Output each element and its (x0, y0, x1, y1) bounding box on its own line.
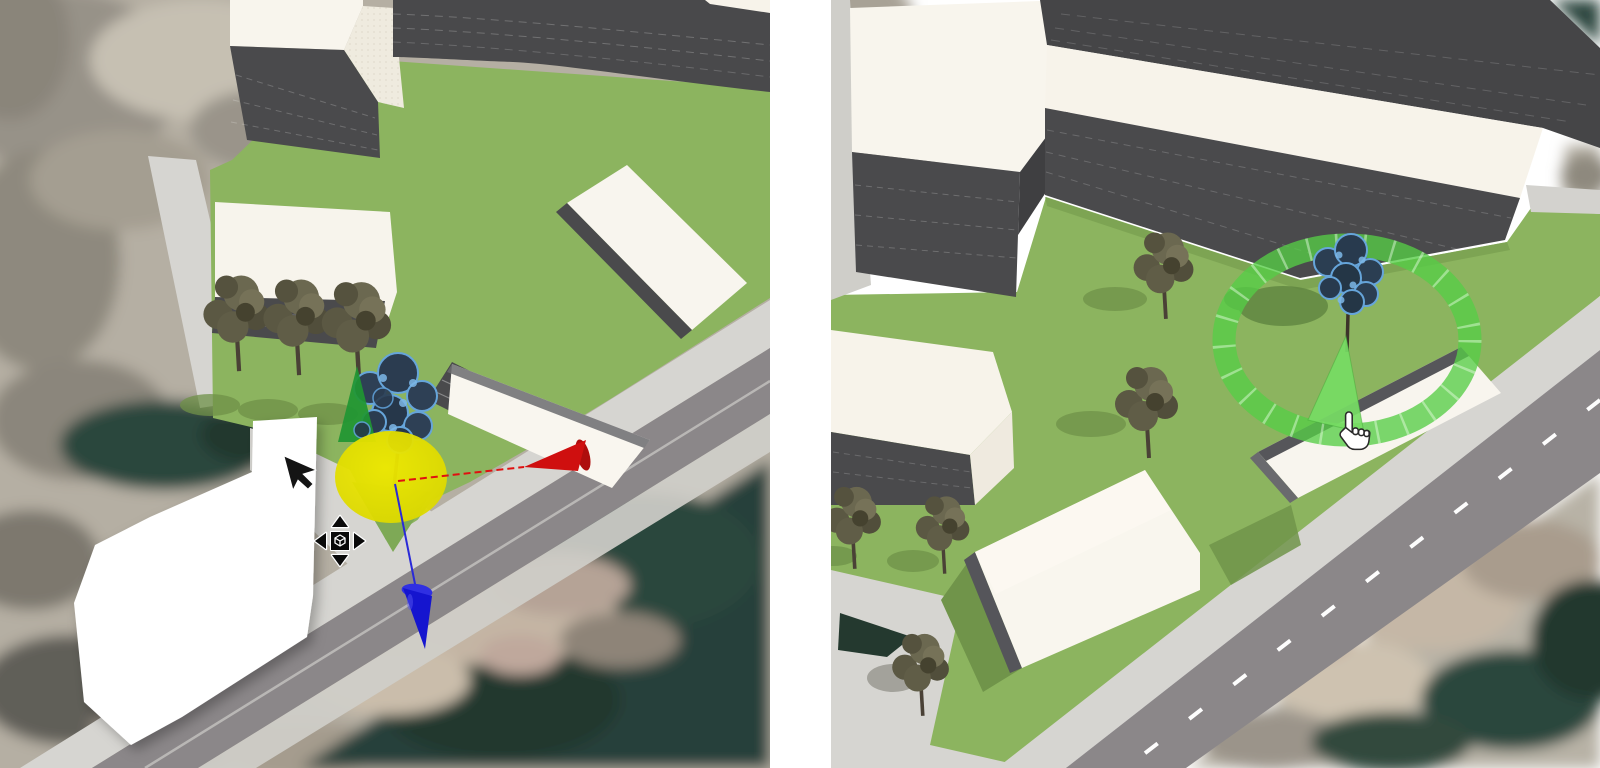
right-3d-scene[interactable] (831, 0, 1600, 768)
sidewalk-upper-right (1526, 185, 1600, 214)
left-3d-scene[interactable] (0, 0, 770, 768)
building-tall-topleft[interactable] (230, 0, 404, 158)
dual-3d-viewport-screenshot (0, 0, 1600, 768)
viewport-right-rotate-tool[interactable] (831, 0, 1600, 768)
building-mid-left[interactable] (831, 330, 1014, 505)
viewport-left-move-tool[interactable] (0, 0, 770, 768)
gizmo-origin-disc-yellow[interactable] (335, 431, 447, 523)
